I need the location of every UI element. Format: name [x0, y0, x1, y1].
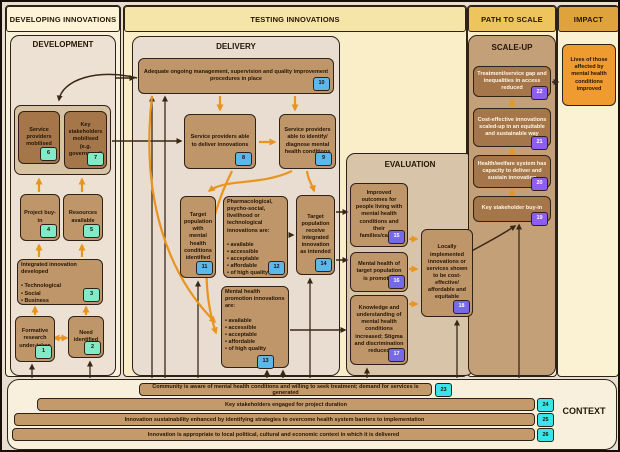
box-key-stakeholders-mobilised: Key stakeholders mobilised (e.g. governm…	[64, 111, 107, 169]
box-integrated-innovation-developed: Integrated innovation developed • Techno…	[17, 259, 103, 305]
section-scale-up-title: SCALE-UP	[468, 43, 556, 52]
badge-24: 24	[537, 398, 554, 412]
bar-stakeholders-engaged: Key stakeholders engaged for project dur…	[37, 398, 535, 411]
badge-26: 26	[537, 428, 554, 442]
box-resources-available: Resources available 5	[63, 194, 103, 241]
badge-17: 17	[388, 348, 405, 362]
section-delivery-title: DELIVERY	[132, 42, 340, 51]
badge-19: 19	[531, 212, 548, 226]
bar-text: Key stakeholders engaged for project dur…	[225, 402, 347, 408]
bar-sustainability-enhanced: Innovation sustainability enhanced by id…	[14, 413, 535, 426]
badge-7: 7	[87, 152, 104, 166]
box-project-buy-in: Project buy-in 4	[20, 194, 60, 241]
badge-2: 2	[84, 341, 101, 355]
box-target-population-identified: Target population with mental health con…	[180, 196, 216, 278]
box-lives-improved: Lives of those affected by mental health…	[562, 44, 616, 106]
box-need-identified: Need identified 2	[68, 316, 104, 358]
box-text: Adequate ongoing management, supervision…	[142, 69, 330, 83]
box-knowledge-stigma: Knowledge and understanding of mental he…	[350, 295, 408, 365]
box-text: Service providers mobilised	[22, 127, 56, 148]
bar-community-aware: Community is aware of mental health cond…	[139, 383, 432, 396]
box-pharmacological-innovations: Pharmacological, psycho-social, liveliho…	[223, 196, 288, 278]
badge-23: 23	[435, 383, 452, 397]
bar-text: Innovation is appropriate to local polit…	[148, 432, 400, 438]
box-target-population-receive: Target population receive integrated inn…	[296, 195, 335, 275]
badge-5: 5	[83, 224, 100, 238]
box-text: Locally implemented innovations or servi…	[425, 244, 469, 301]
badge-3: 3	[83, 288, 100, 302]
box-cost-effective-scaled-up: Cost-effective innovations scaled-up in …	[473, 108, 551, 147]
box-text: Resources available	[67, 210, 99, 224]
badge-11: 11	[196, 261, 213, 275]
section-development-title: DEVELOPMENT	[10, 40, 116, 49]
box-text: Project buy-in	[24, 210, 56, 224]
badge-14: 14	[315, 258, 332, 272]
badge-4: 4	[40, 224, 57, 238]
box-adequate-management: Adequate ongoing management, supervision…	[138, 58, 334, 94]
header-testing-innovations: TESTING INNOVATIONS	[124, 6, 466, 32]
badge-22: 22	[531, 86, 548, 100]
badge-9: 9	[315, 152, 332, 166]
badge-8: 8	[235, 152, 252, 166]
box-system-capacity: Health/welfare system has capacity to de…	[473, 155, 551, 188]
badge-25: 25	[537, 413, 554, 427]
badge-1: 1	[35, 345, 52, 359]
box-providers-deliver-innovations: Service providers able to deliver innova…	[184, 114, 256, 169]
bar-text: Innovation sustainability enhanced by id…	[125, 417, 425, 423]
badge-12: 12	[268, 261, 285, 275]
header-impact: IMPACT	[558, 6, 619, 32]
theory-of-change-diagram: DEVELOPING INNOVATIONS TESTING INNOVATIO…	[0, 0, 620, 452]
box-formative-research: Formative research under-taken 1	[15, 316, 55, 362]
box-text: Mental health promotion innovations are:…	[225, 289, 285, 353]
badge-18: 18	[453, 300, 470, 314]
badge-6: 6	[40, 147, 57, 161]
box-text: Lives of those affected by mental health…	[566, 57, 612, 93]
badge-16: 16	[388, 275, 405, 289]
box-improved-outcomes: Improved outcomes for people living with…	[350, 183, 408, 247]
box-text: Target population receive integrated inn…	[300, 214, 331, 257]
badge-21: 21	[531, 136, 548, 150]
box-text: Target population with mental health con…	[184, 212, 212, 262]
section-context-title: CONTEXT	[552, 406, 616, 416]
badge-20: 20	[531, 177, 548, 191]
badge-15: 15	[388, 230, 405, 244]
box-locally-implemented: Locally implemented innovations or servi…	[421, 229, 473, 317]
box-text: Service providers able to deliver innova…	[188, 134, 252, 148]
bar-text: Community is aware of mental health cond…	[140, 384, 431, 396]
box-text: Cost-effective innovations scaled-up in …	[477, 117, 547, 138]
badge-10: 10	[313, 77, 330, 91]
bar-appropriate-context: Innovation is appropriate to local polit…	[12, 428, 535, 441]
header-path-to-scale: PATH TO SCALE	[468, 6, 556, 32]
badge-13: 13	[257, 355, 274, 369]
box-treatment-gap-reduced: Treatment/service gap and inequalities i…	[473, 66, 551, 97]
box-mental-health-promotion: Mental health promotion innovations are:…	[221, 286, 289, 368]
box-providers-identify-diagnose: Service providers able to identify/ diag…	[279, 114, 336, 169]
box-mental-health-promoted: Mental health of target population is pr…	[350, 252, 408, 292]
box-service-providers-mobilised: Service providers mobilised 6	[18, 111, 60, 164]
box-key-stakeholder-buy-in: Key stakeholder buy-in 19	[473, 196, 551, 222]
header-developing-innovations: DEVELOPING INNOVATIONS	[6, 6, 120, 32]
section-evaluation-title: EVALUATION	[346, 160, 474, 169]
